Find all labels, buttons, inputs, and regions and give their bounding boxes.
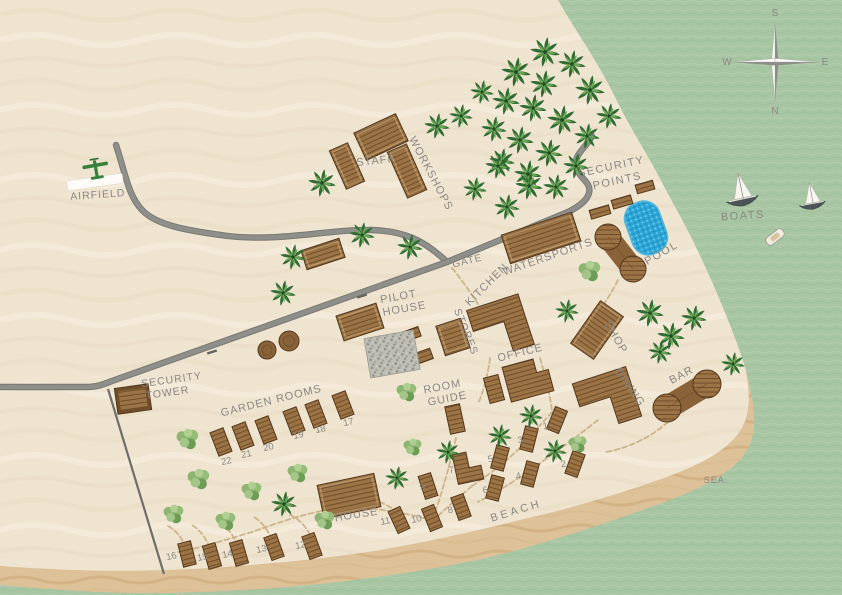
room-number-13: 13 (255, 543, 268, 556)
room-number-10: 10 (410, 513, 423, 526)
compass-letter-W: W (722, 57, 732, 68)
compass-letter-E: E (822, 57, 829, 68)
map-label-sea: SEA. (704, 475, 729, 485)
room-number-20: 20 (262, 441, 275, 454)
room-number-18: 18 (314, 423, 327, 436)
room-number-15: 15 (196, 551, 209, 564)
room-number-16: 16 (165, 550, 178, 563)
compass-letter-S: S (772, 8, 779, 19)
room-number-12: 12 (294, 539, 307, 552)
gravel-yard (364, 330, 420, 378)
round-structure-a (258, 341, 276, 359)
ground-layer (0, 0, 842, 595)
room-number-19: 19 (292, 429, 305, 442)
resort-map: AIRFIELDSTAFFWORKSHOPSSECURITYPOINTSGATE… (0, 0, 842, 595)
round-structure-b (279, 331, 299, 351)
compass-letter-N: N (771, 106, 778, 117)
room-number-17: 17 (342, 416, 355, 429)
room-number-21: 21 (240, 448, 253, 461)
resort-map-page: AIRFIELDSTAFFWORKSHOPSSECURITYPOINTSGATE… (0, 0, 842, 595)
room-number-22: 22 (220, 455, 233, 468)
room-number-14: 14 (221, 548, 234, 561)
